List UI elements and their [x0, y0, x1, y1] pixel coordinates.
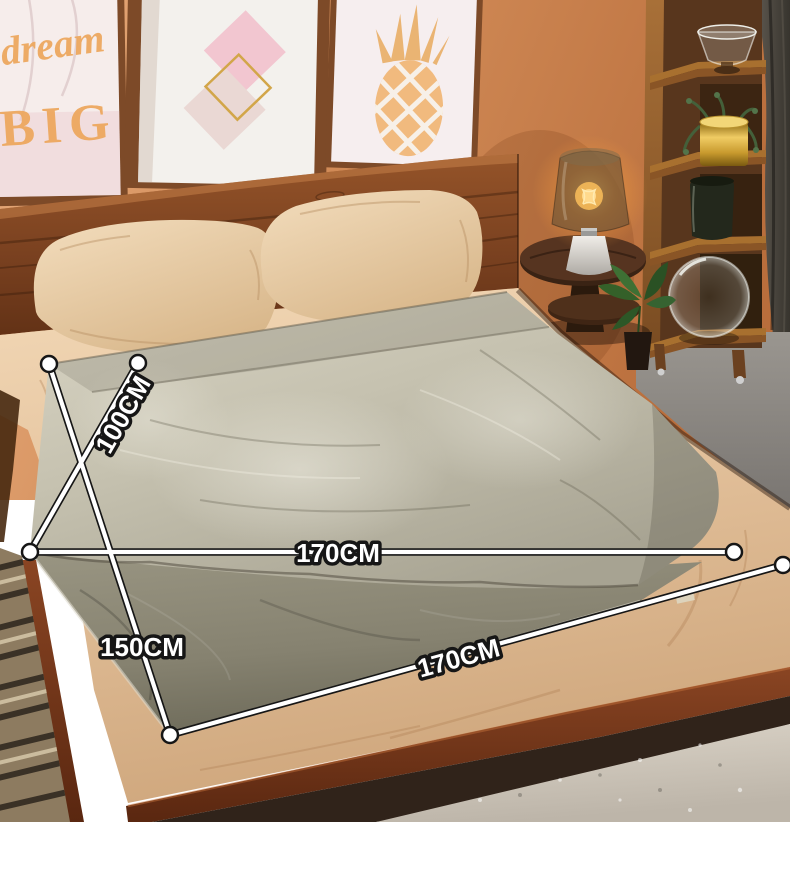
plant-pot: [624, 332, 652, 370]
wall-art-dream-big: dream BIG: [0, 0, 128, 206]
photo-bottom-margin: [0, 822, 790, 895]
corner-shelf: [642, 0, 766, 384]
product-photo: dream BIG: [0, 0, 790, 895]
art-text-big: BIG: [0, 93, 118, 158]
bedroom-scene: dream BIG: [0, 0, 790, 895]
dimension-label-150cm: 150CM: [100, 632, 184, 662]
dimension-label-170cm-top: 170CM: [296, 538, 380, 568]
endpoint-dot: [775, 557, 790, 573]
glass-jar: [690, 176, 734, 240]
endpoint-dot: [41, 356, 57, 372]
endpoint-dot: [130, 355, 146, 371]
wall-art-diamonds: [124, 0, 330, 192]
lamp-base: [566, 236, 612, 275]
endpoint-dot: [162, 727, 178, 743]
endpoint-dot: [726, 544, 742, 560]
endpoint-dot: [22, 544, 38, 560]
